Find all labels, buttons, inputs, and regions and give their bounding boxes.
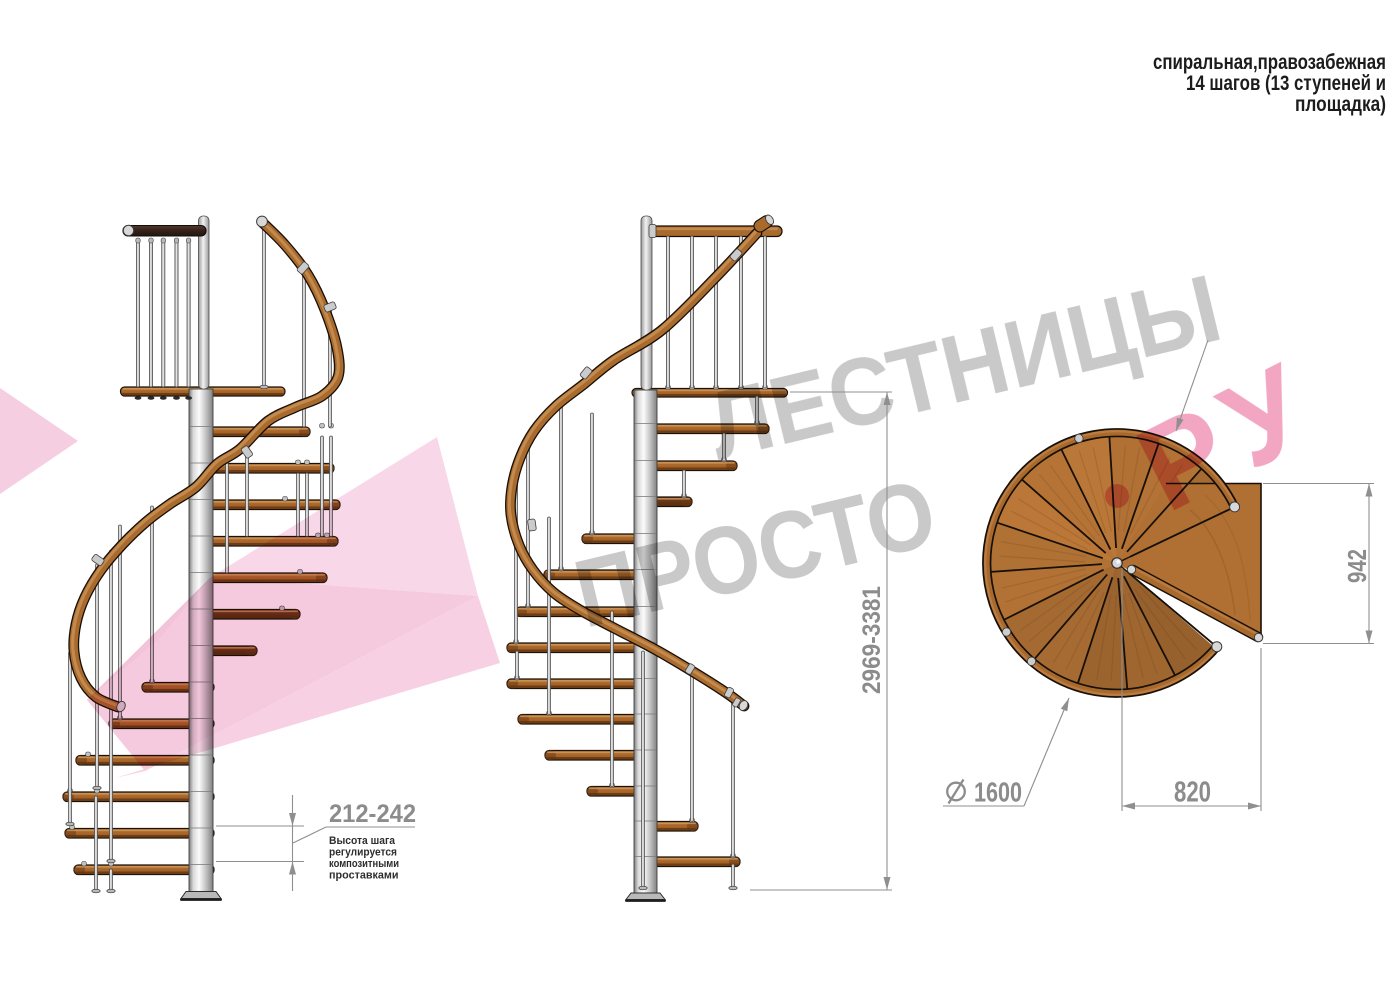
svg-text:820: 820 [1174,777,1211,809]
svg-text:1600: 1600 [974,777,1022,808]
svg-text:942: 942 [1342,549,1372,583]
svg-text:212-242: 212-242 [329,800,416,828]
svg-text:2969-3381: 2969-3381 [858,586,886,694]
svg-text:площадка): площадка) [1295,92,1386,116]
svg-text:Высота шагарегулируетсякомпози: Высота шагарегулируетсякомпозитнымипрост… [329,835,399,882]
